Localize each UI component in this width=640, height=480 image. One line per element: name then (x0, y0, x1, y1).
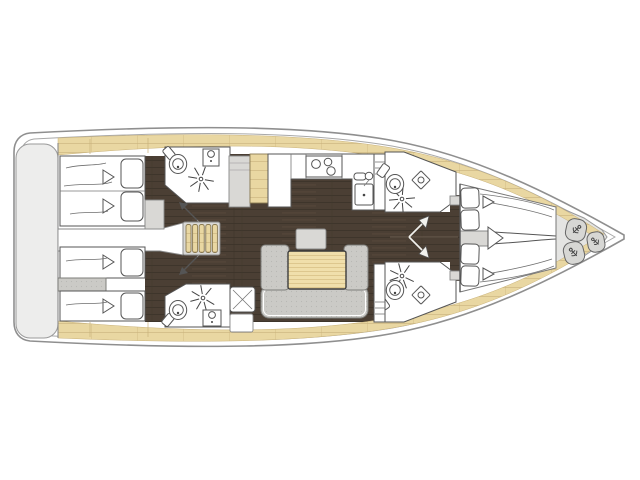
yacht-floor-plan (0, 0, 640, 480)
basin-faucet (209, 312, 216, 319)
stair-tread (186, 225, 191, 253)
bulkhead-post (450, 196, 460, 205)
between-beds-locker (58, 278, 106, 291)
sofa-arm-left (261, 245, 289, 290)
locker (230, 314, 253, 332)
stove-burner (324, 158, 332, 166)
pillow (121, 249, 143, 276)
pillow (461, 188, 480, 209)
fridge-cabinet (250, 154, 268, 203)
faucet-base (354, 173, 366, 180)
pillow (121, 159, 143, 188)
pillow (121, 192, 143, 221)
stair-tread (212, 225, 217, 253)
pillow (461, 266, 480, 287)
sink-drain (363, 194, 366, 197)
companionway-stairs (183, 222, 220, 255)
basin-drain (211, 321, 213, 323)
basin-drain (210, 160, 212, 162)
swim-platform (16, 144, 58, 338)
cabin-step (145, 200, 164, 229)
galley-cabinet (229, 156, 250, 207)
sofa-bench (261, 286, 368, 318)
stair-tread (199, 225, 204, 253)
pillow (461, 210, 480, 231)
shelf-column (374, 264, 385, 322)
stove (306, 156, 342, 177)
faucet (365, 172, 373, 180)
floor-plan-canvas (0, 0, 640, 480)
stove-burner (327, 167, 335, 175)
bulkhead-post (450, 271, 460, 280)
basin-faucet (418, 177, 424, 183)
pillow (121, 293, 143, 319)
basin-faucet (208, 151, 215, 158)
stair-tread (193, 225, 198, 253)
stove-burner (312, 160, 321, 169)
salon-seat (296, 229, 326, 249)
pillow (461, 244, 480, 265)
basin-faucet (418, 292, 424, 298)
salon-table (288, 251, 346, 289)
stair-tread (206, 225, 211, 253)
sofa-arm-right (344, 245, 368, 290)
